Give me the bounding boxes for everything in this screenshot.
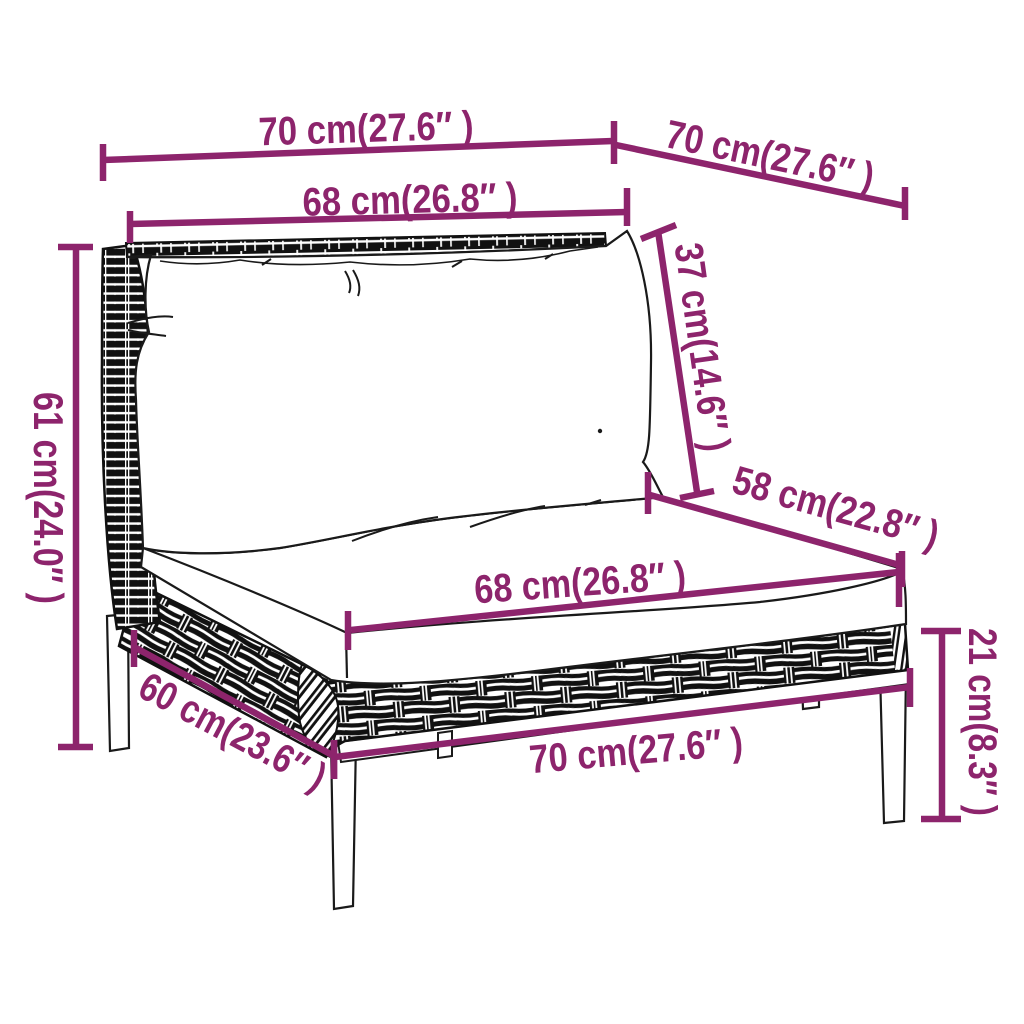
- svg-text:21 cm(8.3″ ): 21 cm(8.3″ ): [960, 628, 1004, 816]
- svg-text:70 cm(27.6″ ): 70 cm(27.6″ ): [258, 104, 474, 155]
- svg-text:61 cm(24.0″ ): 61 cm(24.0″ ): [25, 392, 72, 604]
- svg-text:68 cm(26.8″ ): 68 cm(26.8″ ): [302, 175, 518, 225]
